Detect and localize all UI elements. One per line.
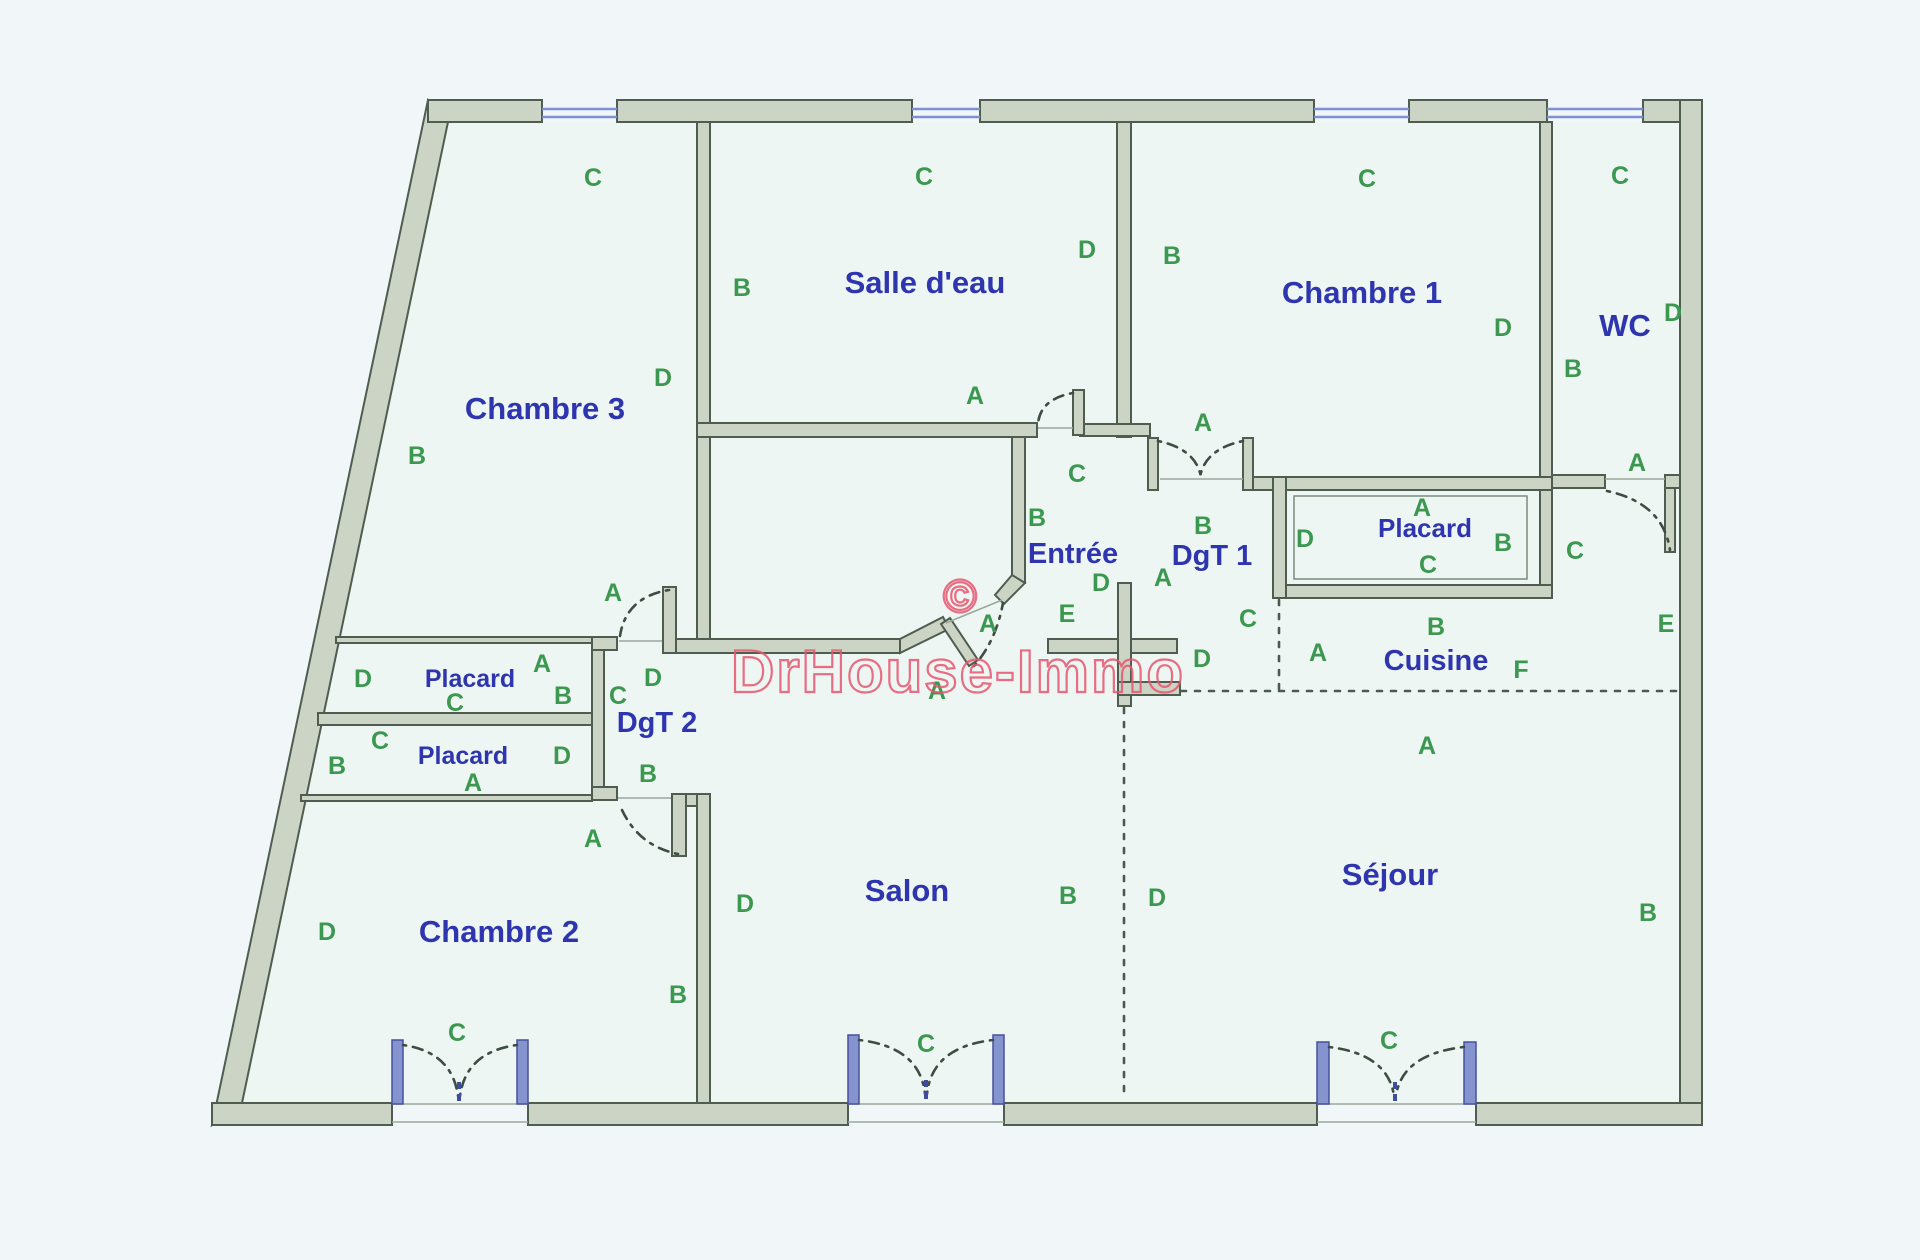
dimension-letter-d: D	[354, 665, 372, 693]
french-window-chambre2-right-leaf	[517, 1040, 528, 1104]
dimension-letter-b: B	[1494, 529, 1512, 557]
dimension-letter-c: C	[609, 682, 627, 710]
dimension-letter-c: C	[584, 164, 602, 192]
dimension-letter-c: C	[448, 1019, 466, 1047]
dimension-letter-b: B	[408, 442, 426, 470]
dimension-letter-c: C	[1566, 537, 1584, 565]
outer-wall-right	[1680, 100, 1702, 1125]
dimension-letter-b: B	[1059, 882, 1077, 910]
wall-dgt2-sw-jog	[592, 787, 617, 800]
room-label-chambre-1: Chambre 1	[1282, 275, 1442, 310]
wall-salledeau-south-east	[1080, 424, 1150, 436]
room-label-dgt-1: DgT 1	[1172, 540, 1253, 572]
door-leaf-dgt2-south	[672, 794, 686, 856]
room-label-wc: WC	[1599, 308, 1651, 343]
dimension-letter-c: C	[1358, 165, 1376, 193]
dimension-letter-b: B	[554, 682, 572, 710]
french-window-sejour-left-leaf	[1317, 1042, 1329, 1104]
dimension-letter-c: C	[371, 727, 389, 755]
watermark-copyright-icon: ©	[943, 570, 977, 622]
outer-wall-top-3	[980, 100, 1314, 122]
dimension-letter-c: C	[1239, 605, 1257, 633]
room-label-dgt-2: DgT 2	[617, 707, 698, 739]
dimension-letter-b: B	[1163, 242, 1181, 270]
door-leaf-dgt2-north	[663, 587, 676, 653]
dimension-letter-a: A	[1309, 639, 1327, 667]
outer-wall-top-1	[428, 100, 542, 122]
dimension-letter-a: A	[1413, 494, 1431, 522]
french-window-chambre2-left-leaf	[392, 1040, 403, 1104]
wall-entree-west	[1012, 437, 1025, 583]
dimension-letter-c: C	[917, 1030, 935, 1058]
wall-salledeau-chambre1	[1117, 122, 1131, 437]
wall-placard1-top	[336, 637, 592, 643]
dimension-letter-d: D	[553, 742, 571, 770]
wall-dgt2-west	[592, 637, 604, 800]
outer-wall-bottom-1	[212, 1103, 392, 1125]
dimension-letter-a: A	[584, 825, 602, 853]
dimension-letter-b: B	[639, 760, 657, 788]
dimension-letter-d: D	[1664, 299, 1682, 327]
dimension-letter-c: C	[1611, 162, 1629, 190]
dimension-letter-d: D	[318, 918, 336, 946]
dimension-letter-c: C	[1068, 460, 1086, 488]
dimension-letter-c: C	[1380, 1027, 1398, 1055]
dimension-letter-d: D	[654, 364, 672, 392]
dimension-letter-a: A	[1418, 732, 1436, 760]
room-label-entree: Entrée	[1028, 538, 1118, 570]
dimension-letter-a: A	[1194, 409, 1212, 437]
dimension-letter-a: A	[979, 610, 997, 638]
dimension-letter-d: D	[1078, 236, 1096, 264]
dimension-letter-d: D	[736, 890, 754, 918]
dimension-letter-a: A	[533, 650, 551, 678]
dimension-letter-d: D	[644, 664, 662, 692]
wall-placard-chambre1-bottom	[1273, 585, 1552, 598]
wall-chambre1-wc	[1540, 122, 1552, 598]
french-window-salon-left-leaf	[848, 1035, 859, 1104]
outer-wall-bottom-4	[1476, 1103, 1702, 1125]
dimension-letter-b: B	[1564, 355, 1582, 383]
dimension-letter-d: D	[1494, 314, 1512, 342]
dimension-letter-d: D	[1193, 645, 1211, 673]
dimension-letter-e: E	[1059, 600, 1076, 628]
dimension-letter-b: B	[1427, 613, 1445, 641]
room-label-placard-1: Placard	[425, 665, 515, 693]
dimension-letter-a: A	[604, 579, 622, 607]
room-label-sejour: Séjour	[1342, 857, 1438, 892]
dimension-letter-c: C	[915, 163, 933, 191]
wall-chambre3-salledeau	[697, 122, 710, 645]
door-leaf-wc	[1665, 488, 1675, 552]
dimension-letter-e: E	[1658, 610, 1675, 638]
room-label-cuisine: Cuisine	[1384, 645, 1489, 677]
wall-dgt2-nw-jog	[592, 637, 617, 650]
dimension-letter-c: C	[1419, 551, 1437, 579]
dimension-letter-b: B	[328, 752, 346, 780]
dimension-letter-d: D	[1148, 884, 1166, 912]
outer-wall-bottom-2	[528, 1103, 848, 1125]
door-leaf-dgt1-left	[1148, 438, 1158, 490]
outer-wall-top-2	[617, 100, 912, 122]
dimension-letter-b: B	[1639, 899, 1657, 927]
dimension-letter-d: D	[1296, 525, 1314, 553]
dimension-letter-a: A	[966, 382, 984, 410]
room-label-salon: Salon	[865, 873, 949, 908]
room-label-placard-2: Placard	[418, 742, 508, 770]
floorplan-svg: Chambre 3Salle d'eauChambre 1WCEntréeDgT…	[0, 0, 1920, 1260]
door-leaf-salledeau	[1073, 390, 1084, 435]
door-leaf-dgt1-right	[1243, 438, 1253, 490]
floorplan-page: Chambre 3Salle d'eauChambre 1WCEntréeDgT…	[0, 0, 1920, 1260]
french-window-sejour-right-leaf	[1464, 1042, 1476, 1104]
dimension-letter-a: A	[1154, 564, 1172, 592]
dimension-letter-b: B	[1194, 512, 1212, 540]
dimension-letter-a: A	[1628, 449, 1646, 477]
wall-wc-south-left	[1552, 475, 1605, 488]
dimension-letter-d: D	[1092, 569, 1110, 597]
dimension-letter-b: B	[1028, 504, 1046, 532]
outer-wall-top-4	[1409, 100, 1547, 122]
wall-placard-chambre1-top	[1273, 477, 1552, 490]
wall-placard-chambre1-left	[1273, 477, 1286, 598]
wall-salledeau-south	[697, 423, 1037, 437]
dimension-letter-a: A	[464, 769, 482, 797]
wall-wc-south-right	[1665, 475, 1680, 488]
dimension-letter-f: F	[1513, 656, 1528, 684]
room-label-chambre-3: Chambre 3	[465, 391, 625, 426]
dimension-letter-b: B	[733, 274, 751, 302]
watermark-text: DrHouse-Immo	[731, 638, 1185, 705]
wall-chambre2-salon	[697, 794, 710, 1103]
french-window-salon-right-leaf	[993, 1035, 1004, 1104]
dimension-letter-b: B	[669, 981, 687, 1009]
dimension-letter-c: C	[446, 689, 464, 717]
room-label-chambre-2: Chambre 2	[419, 914, 579, 949]
room-label-salle-d-eau: Salle d'eau	[845, 265, 1006, 300]
wall-placard2-bottom	[301, 795, 592, 801]
outer-wall-bottom-3	[1004, 1103, 1317, 1125]
